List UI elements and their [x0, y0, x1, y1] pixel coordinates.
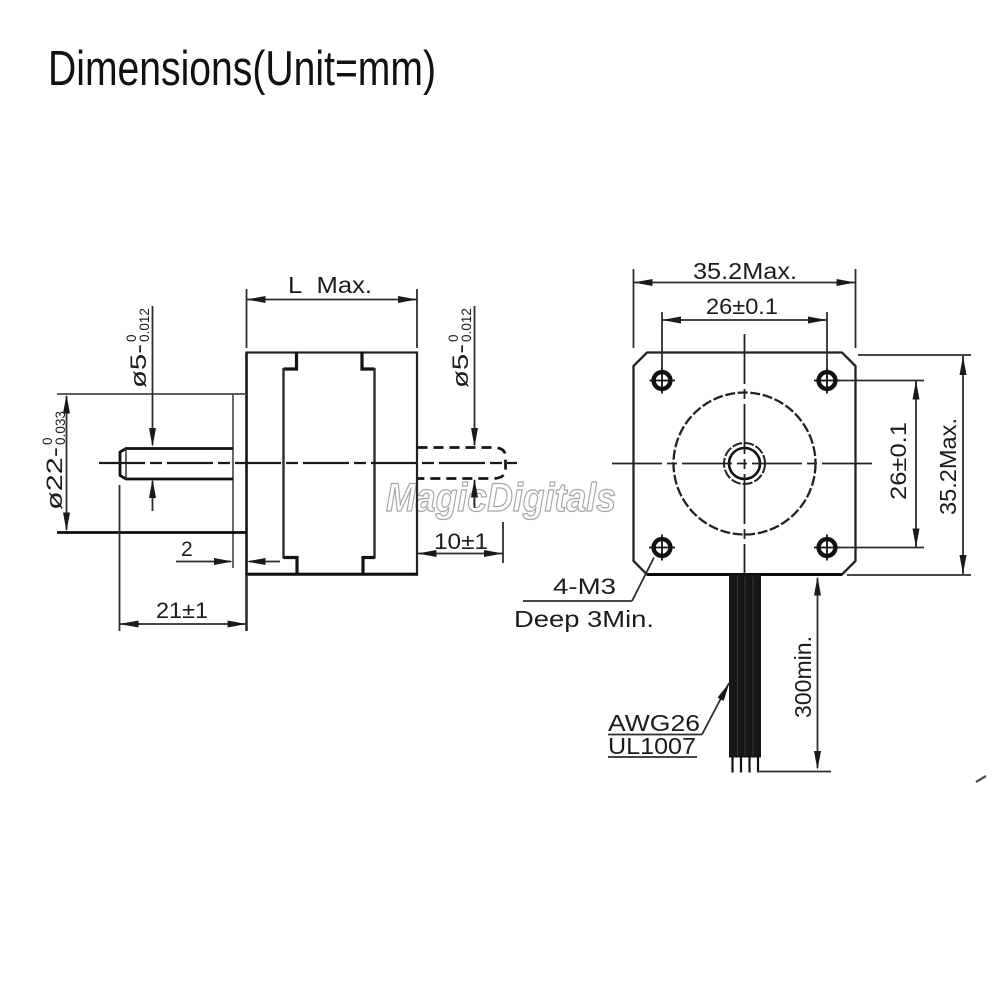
svg-text:ø22-: ø22- — [42, 447, 67, 510]
svg-text:26±0.1: 26±0.1 — [706, 294, 778, 319]
svg-text:MagicDigitals: MagicDigitals — [386, 476, 616, 520]
svg-text:0.012: 0.012 — [459, 308, 474, 342]
svg-text:26±0.1: 26±0.1 — [886, 422, 911, 500]
svg-text:UL1007: UL1007 — [608, 733, 696, 759]
svg-text:ø5-: ø5- — [448, 344, 473, 388]
svg-text:35.2Max.: 35.2Max. — [935, 418, 961, 515]
svg-text:ø5-: ø5- — [126, 344, 151, 388]
svg-text:2: 2 — [181, 538, 193, 561]
svg-text:0.012: 0.012 — [137, 308, 152, 342]
svg-text:35.2Max.: 35.2Max. — [693, 258, 797, 284]
svg-text:10±1: 10±1 — [434, 529, 488, 554]
svg-text:0.033: 0.033 — [53, 411, 68, 445]
svg-text:4-M3: 4-M3 — [553, 574, 616, 599]
svg-text:21±1: 21±1 — [156, 598, 208, 623]
svg-text:L Max.: L Max. — [288, 272, 372, 298]
svg-text:Dimensions(Unit=mm): Dimensions(Unit=mm) — [48, 42, 436, 96]
svg-text:Deep 3Min.: Deep 3Min. — [514, 606, 654, 632]
svg-text:300min.: 300min. — [790, 636, 816, 718]
